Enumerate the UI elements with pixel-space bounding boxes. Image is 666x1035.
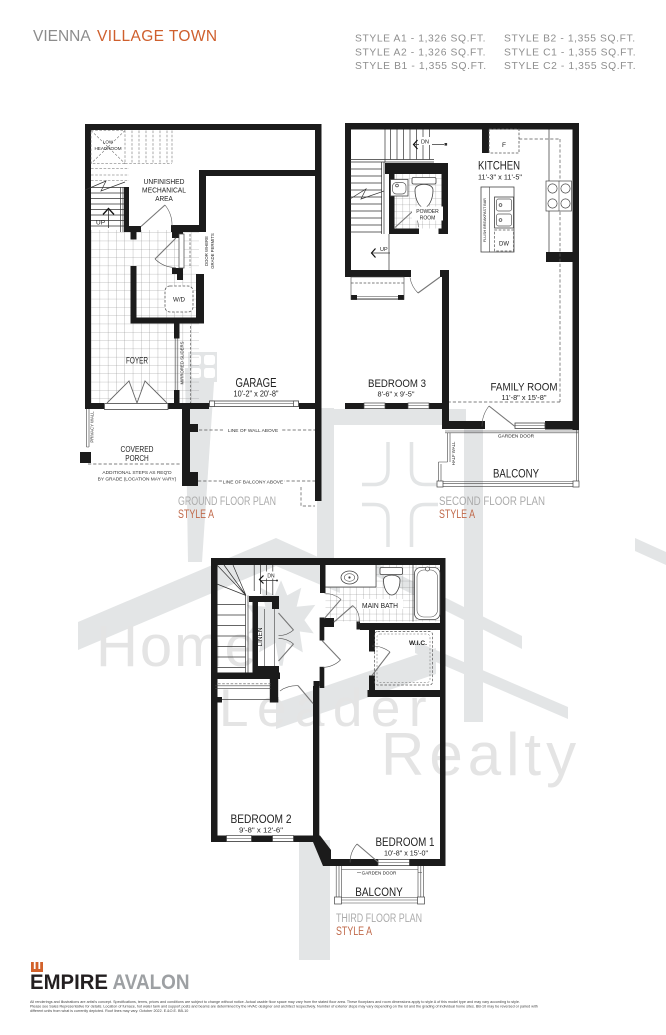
svg-text:DN: DN [267,574,275,580]
svg-text:STYLE B1 - 1,355 SQ.FT.: STYLE B1 - 1,355 SQ.FT. [355,61,487,72]
svg-text:ROOM: ROOM [420,216,436,222]
svg-text:AVALON: AVALON [113,970,190,994]
svg-text:GRADE PERMITS: GRADE PERMITS [210,233,215,269]
svg-text:ADDITIONAL STEPS AS REQ'D: ADDITIONAL STEPS AS REQ'D [102,470,172,476]
svg-text:different units from what is c: different units from what is currently d… [30,1009,188,1013]
svg-text:Realty: Realty [381,721,581,788]
svg-text:FOYER: FOYER [126,356,148,366]
svg-text:BY GRADE (LOCATION MAY VARY): BY GRADE (LOCATION MAY VARY) [98,477,177,483]
svg-text:STYLE A1 - 1,326 SQ.FT.: STYLE A1 - 1,326 SQ.FT. [355,34,486,45]
svg-text:GROUND FLOOR PLAN: GROUND FLOOR PLAN [178,496,276,508]
svg-text:STYLE C1 - 1,355 SQ.FT.: STYLE C1 - 1,355 SQ.FT. [504,48,636,59]
svg-text:HALF WALL: HALF WALL [451,441,456,465]
svg-text:8'-6" x 9'-5": 8'-6" x 9'-5" [378,390,415,399]
svg-text:FAMILY ROOM: FAMILY ROOM [491,382,558,394]
svg-text:VILLAGE TOWN: VILLAGE TOWN [97,28,218,45]
svg-text:MIRRORED SLIDERS: MIRRORED SLIDERS [180,341,185,384]
svg-text:DW: DW [499,242,509,248]
svg-text:GARAGE: GARAGE [236,375,277,390]
svg-text:MAIN BATH: MAIN BATH [362,601,398,610]
svg-text:10'-8" x 15'-0": 10'-8" x 15'-0" [384,849,428,858]
svg-text:HEADROOM: HEADROOM [94,146,121,151]
svg-text:KITCHEN: KITCHEN [478,161,520,173]
svg-text:BEDROOM 2: BEDROOM 2 [231,814,292,826]
svg-text:STYLE C2 - 1,355 SQ.FT.: STYLE C2 - 1,355 SQ.FT. [504,61,636,72]
svg-text:BALCONY: BALCONY [355,887,403,899]
svg-text:SECOND FLOOR PLAN: SECOND FLOOR PLAN [439,496,545,508]
svg-text:LINE OF WALL ABOVE: LINE OF WALL ABOVE [228,428,278,434]
svg-text:LINEN: LINEN [258,628,264,647]
svg-text:LINE OF BALCONY ABOVE: LINE OF BALCONY ABOVE [223,480,283,486]
svg-text:GARDEN DOOR: GARDEN DOOR [498,434,535,440]
svg-text:THIRD FLOOR PLAN: THIRD FLOOR PLAN [336,913,422,925]
svg-text:STYLE A: STYLE A [336,926,372,938]
svg-text:W/D: W/D [173,297,186,304]
svg-text:All renderings and illustratio: All renderings and illustrations are art… [30,1000,520,1004]
svg-text:VIENNA: VIENNA [33,28,91,45]
svg-text:DOOR WHERE: DOOR WHERE [204,236,209,266]
svg-text:POWDER: POWDER [416,209,439,215]
svg-text:UP: UP [96,220,105,227]
svg-text:STYLE B2 - 1,355 SQ.FT.: STYLE B2 - 1,355 SQ.FT. [504,34,636,45]
svg-text:GARDEN DOOR: GARDEN DOOR [362,871,397,876]
svg-text:11'-3" x 11'-5": 11'-3" x 11'-5" [478,173,522,182]
svg-text:W.I.C.: W.I.C. [409,640,427,647]
svg-text:9'-8" x 12'-6": 9'-8" x 12'-6" [239,826,283,835]
svg-text:FLUSH BREAKFAST BAR: FLUSH BREAKFAST BAR [482,198,487,242]
svg-text:BEDROOM 1: BEDROOM 1 [376,837,435,849]
svg-text:STYLE A2 - 1,326 SQ.FT.: STYLE A2 - 1,326 SQ.FT. [355,48,486,59]
svg-text:BALCONY: BALCONY [493,469,539,481]
svg-text:PRIVACY WALL: PRIVACY WALL [90,411,95,443]
svg-text:DN: DN [421,140,429,146]
svg-text:AREA: AREA [155,194,173,203]
svg-text:LOW: LOW [103,140,114,145]
svg-text:10'-2" x 20'-8": 10'-2" x 20'-8" [234,390,279,399]
svg-text:COVERED: COVERED [121,445,154,454]
svg-text:UP: UP [380,247,388,253]
svg-text:11'-8" x 15'-8": 11'-8" x 15'-8" [502,393,547,402]
svg-text:EMPIRE: EMPIRE [30,970,108,994]
svg-text:STYLE A: STYLE A [439,509,475,521]
svg-text:Please see Sales Representativ: Please see Sales Representative for deta… [30,1005,538,1009]
svg-text:PORCH: PORCH [125,454,149,463]
svg-text:BEDROOM 3: BEDROOM 3 [368,378,426,390]
svg-text:STYLE A: STYLE A [178,509,214,521]
svg-text:F: F [502,142,506,149]
